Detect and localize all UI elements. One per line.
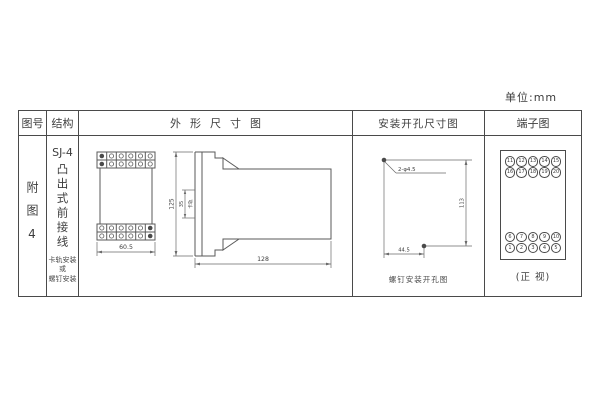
header-structure: 结构 bbox=[47, 111, 79, 136]
mounting-note-line: 或 bbox=[49, 265, 77, 274]
figure-number-cell: 附图4 bbox=[19, 136, 47, 296]
terminal-row: 12345 bbox=[504, 243, 562, 254]
terminal-view-caption: (正 视) bbox=[516, 269, 550, 283]
outline-dimension-drawing: 60.5 125 bbox=[83, 144, 349, 292]
rail-label: 卡轨 bbox=[187, 199, 194, 209]
dim-hole-vertical: 113 bbox=[459, 198, 465, 208]
terminal-number: 11 bbox=[505, 156, 516, 167]
terminal-number: 18 bbox=[528, 167, 539, 178]
terminal-number: 17 bbox=[516, 167, 527, 178]
unit-label: 单位:mm bbox=[505, 89, 557, 105]
terminal-row: 1112131415 bbox=[504, 156, 562, 167]
mounting-note: 卡轨安装 或 螺钉安装 bbox=[49, 256, 77, 284]
mounting-caption: 螺钉安装开孔图 bbox=[389, 274, 449, 285]
drawing-sheet-table: 图号 结构 外形尺寸图 安装开孔尺寸图 端子图 附图4 SJ-4 凸出式前接线 … bbox=[18, 110, 582, 297]
hole-spec-label: 2-φ4.5 bbox=[398, 167, 416, 173]
mounting-note-line: 螺钉安装 bbox=[49, 275, 77, 284]
terminal-number: 4 bbox=[539, 243, 550, 254]
terminal-number: 1 bbox=[505, 243, 516, 254]
dim-side-height: 125 bbox=[168, 198, 175, 210]
terminal-number: 3 bbox=[528, 243, 539, 254]
terminal-number: 13 bbox=[528, 156, 539, 167]
terminal-number: 5 bbox=[551, 243, 562, 254]
terminal-number: 2 bbox=[516, 243, 527, 254]
dim-side-depth: 128 bbox=[257, 256, 269, 263]
header-terminal-diagram: 端子图 bbox=[485, 111, 581, 136]
header-mounting-holes: 安装开孔尺寸图 bbox=[353, 111, 485, 136]
terminal-number: 15 bbox=[551, 156, 562, 167]
structure-type-label: 凸出式前接线 bbox=[55, 163, 71, 250]
mounting-hole-drawing: 2-φ4.5 113 44.5 bbox=[354, 146, 484, 268]
terminal-row: 678910 bbox=[504, 232, 562, 243]
header-outline-dimensions: 外形尺寸图 bbox=[79, 111, 353, 136]
terminal-number: 14 bbox=[539, 156, 550, 167]
terminal-number: 8 bbox=[528, 232, 539, 243]
terminal-diagram-cell: 11121314151617181920 67891012345 (正 视) bbox=[485, 136, 581, 296]
terminal-number: 20 bbox=[551, 167, 562, 178]
mounting-drawing-cell: 2-φ4.5 113 44.5 螺钉安装开孔图 bbox=[353, 136, 485, 296]
relay-model-label: SJ-4 bbox=[52, 146, 73, 159]
terminal-number: 6 bbox=[505, 232, 516, 243]
outline-drawing-cell: 60.5 125 bbox=[79, 136, 353, 296]
terminal-number: 10 bbox=[551, 232, 562, 243]
structure-cell: SJ-4 凸出式前接线 卡轨安装 或 螺钉安装 bbox=[47, 136, 79, 296]
terminal-box: 11121314151617181920 67891012345 bbox=[500, 150, 566, 260]
terminal-grid-top: 11121314151617181920 bbox=[504, 156, 562, 179]
dim-hole-horizontal: 44.5 bbox=[398, 248, 410, 254]
terminal-number: 7 bbox=[516, 232, 527, 243]
dim-front-width: 60.5 bbox=[119, 244, 133, 251]
header-figure-number: 图号 bbox=[19, 111, 47, 136]
dim-rail-width: 35 bbox=[179, 201, 185, 207]
terminal-grid-bottom: 67891012345 bbox=[504, 231, 562, 254]
terminal-number: 16 bbox=[505, 167, 516, 178]
terminal-row: 1617181920 bbox=[504, 167, 562, 178]
terminal-number: 12 bbox=[516, 156, 527, 167]
terminal-number: 19 bbox=[539, 167, 550, 178]
terminal-number: 9 bbox=[539, 232, 550, 243]
